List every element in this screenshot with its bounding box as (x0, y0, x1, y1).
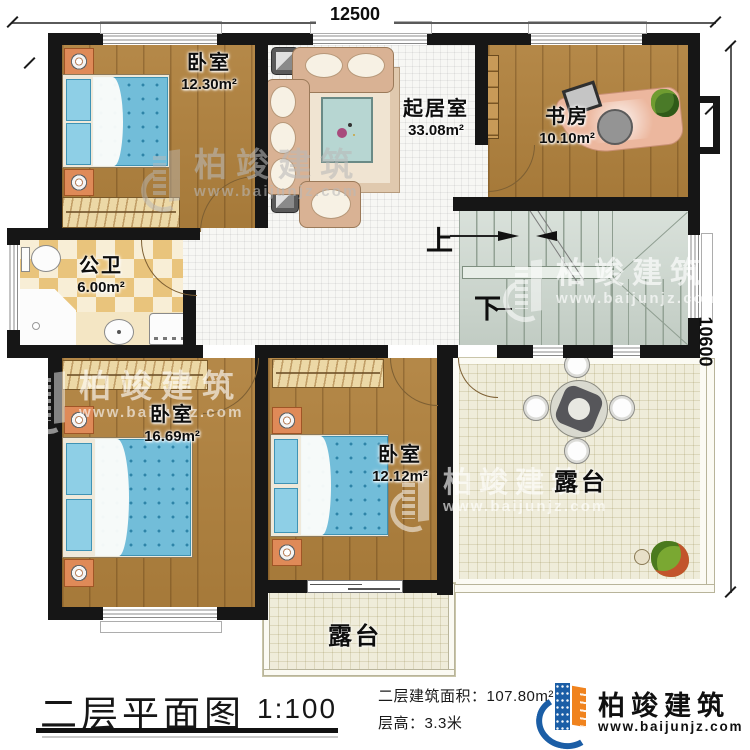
window (103, 33, 217, 45)
sofa-cushion (270, 122, 296, 154)
room-name: 卧室 (133, 404, 211, 428)
toilet-tank (21, 247, 30, 272)
stair-treads-lower (490, 279, 688, 345)
window (7, 245, 20, 330)
bed-pillow (66, 79, 91, 121)
room-area: 10.10m² (530, 130, 604, 148)
room-area: 6.00m² (70, 279, 132, 297)
title-underline-shadow (42, 736, 338, 738)
room-area: 12.12m² (362, 468, 438, 486)
dimension-height-label: 10600 (695, 309, 716, 375)
wall-segment (258, 345, 388, 358)
bed-pillow (66, 443, 92, 495)
room-label-living: 起居室 33.08m² (390, 98, 482, 139)
room-label-study: 书房 10.10m² (530, 106, 604, 147)
wall-segment (453, 197, 700, 211)
nightstand (64, 406, 94, 434)
bed-sheet (93, 77, 123, 166)
terrace-main-parapet-right (706, 358, 715, 593)
room-area: 12.30m² (163, 76, 255, 94)
nightstand (272, 407, 302, 434)
title-underline (36, 728, 338, 733)
bed-sheet (95, 439, 129, 556)
wall-segment (7, 345, 203, 358)
bed-pillow (66, 123, 91, 165)
floorplan-canvas: 上 下 (0, 0, 750, 750)
window-sill (100, 621, 222, 633)
potted-plant (651, 89, 679, 117)
nightstand (64, 48, 94, 75)
dimension-width-label: 12500 (316, 4, 394, 25)
room-area: 16.69m² (133, 428, 211, 446)
shower-drain (32, 322, 40, 330)
bed-sheet (301, 436, 331, 535)
wall-segment (255, 580, 307, 593)
window (313, 33, 427, 45)
room-name: 卧室 (362, 444, 438, 468)
window (533, 345, 563, 358)
stairs-down-label: 下 (474, 296, 501, 323)
bed-pillow (274, 488, 298, 533)
bed-pillow (66, 499, 92, 551)
nightstand (64, 559, 94, 587)
room-label-bedroom-middle: 卧室 12.12m² (362, 444, 438, 485)
wall-segment (563, 345, 613, 358)
stairwell-left-line (459, 211, 460, 345)
terrace-small-parapet-bottom (263, 669, 455, 676)
stair-direction-arrow (536, 231, 557, 241)
room-label-terrace-small: 露台 (328, 616, 382, 651)
dimension-tick (23, 57, 35, 69)
wall-segment (403, 580, 453, 593)
dimension-line-right (730, 45, 732, 593)
room-label-terrace-main: 露台 (554, 462, 608, 497)
company-name: 柏竣建筑 (598, 684, 730, 723)
stair-guide-line (450, 235, 498, 237)
terrace-plant (651, 541, 689, 577)
terrace-plant-pot (634, 549, 650, 565)
stair-rail (462, 266, 614, 279)
terrace-chair (609, 395, 635, 421)
wall-segment (255, 33, 268, 228)
window (531, 33, 642, 45)
terrace-chair (523, 395, 549, 421)
floor-height-text: 层高：3.3米 (378, 712, 462, 733)
wall-segment (255, 345, 268, 620)
terrace-main-parapet-bottom (446, 584, 715, 593)
wall-segment (48, 33, 62, 228)
room-name: 卧室 (163, 52, 255, 76)
terrace-chair (564, 438, 590, 464)
room-label-bathroom: 公卫 6.00m² (70, 255, 132, 296)
bay-wall (700, 147, 720, 154)
washing-machine-controls (154, 337, 183, 340)
stair-direction-arrow (498, 231, 519, 241)
sink-drain (117, 330, 121, 334)
floor-area-text: 二层建筑面积：107.80m² (378, 685, 554, 706)
nightstand (64, 169, 94, 196)
room-label-bedroom-top: 卧室 12.30m² (163, 52, 255, 93)
stairs-up-label: 上 (426, 228, 453, 255)
toilet-bowl (31, 245, 61, 272)
sliding-door (307, 580, 403, 593)
company-logo-icon (538, 681, 596, 741)
room-label-bedroom-left: 卧室 16.69m² (133, 404, 211, 445)
wall-segment (48, 345, 62, 620)
wall-segment (217, 607, 268, 620)
room-name: 书房 (530, 106, 604, 130)
terrace-table (550, 380, 608, 438)
wall-segment (183, 290, 196, 345)
bed-pillow (274, 439, 298, 484)
sofa-cushion (347, 53, 385, 78)
company-website: www.baijunjz.com (598, 719, 743, 734)
sofa-cushion (311, 189, 351, 219)
sofa-cushion (270, 86, 296, 118)
wall-segment (688, 33, 700, 235)
table-flowers (337, 128, 347, 138)
window (688, 235, 700, 318)
wall-segment (497, 345, 533, 358)
wall-segment (7, 228, 200, 240)
plan-scale: 1:100 (257, 693, 337, 725)
room-name: 起居室 (390, 98, 482, 122)
sofa-cushion (305, 53, 343, 78)
wall-segment (437, 345, 458, 358)
sliding-door-panel (310, 584, 362, 586)
window (613, 345, 640, 358)
nightstand (272, 539, 302, 566)
terrace-small-parapet-right (448, 583, 455, 676)
coffee-table (321, 97, 373, 163)
closet (62, 197, 180, 228)
closet (62, 360, 208, 390)
room-name: 公卫 (70, 255, 132, 279)
window (103, 607, 217, 620)
wall-segment (48, 607, 103, 620)
room-area: 33.08m² (390, 122, 482, 140)
sliding-door-panel (348, 588, 400, 590)
wall-segment (437, 358, 453, 595)
terrace-table-center (568, 398, 590, 420)
closet (272, 359, 384, 388)
sofa-cushion (270, 158, 296, 190)
